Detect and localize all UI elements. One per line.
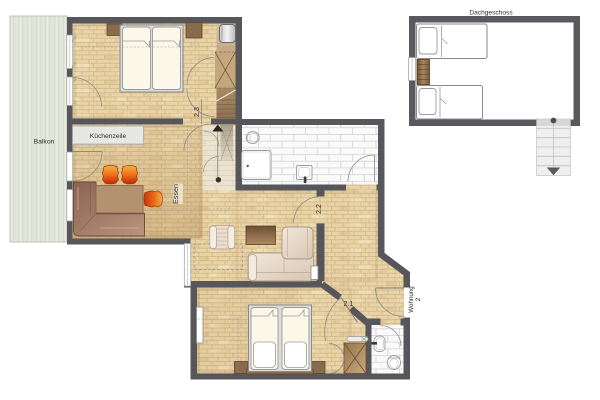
svg-text:2.3: 2.3 <box>192 107 201 117</box>
svg-text:Essen: Essen <box>171 184 180 204</box>
svg-text:Balkon: Balkon <box>34 139 55 146</box>
svg-text:2: 2 <box>415 297 422 301</box>
svg-text:2.1: 2.1 <box>344 299 354 308</box>
svg-text:Küchenzeile: Küchenzeile <box>90 133 127 140</box>
svg-text:2.2: 2.2 <box>314 204 323 214</box>
svg-text:Dachgeschoss: Dachgeschoss <box>469 10 513 17</box>
